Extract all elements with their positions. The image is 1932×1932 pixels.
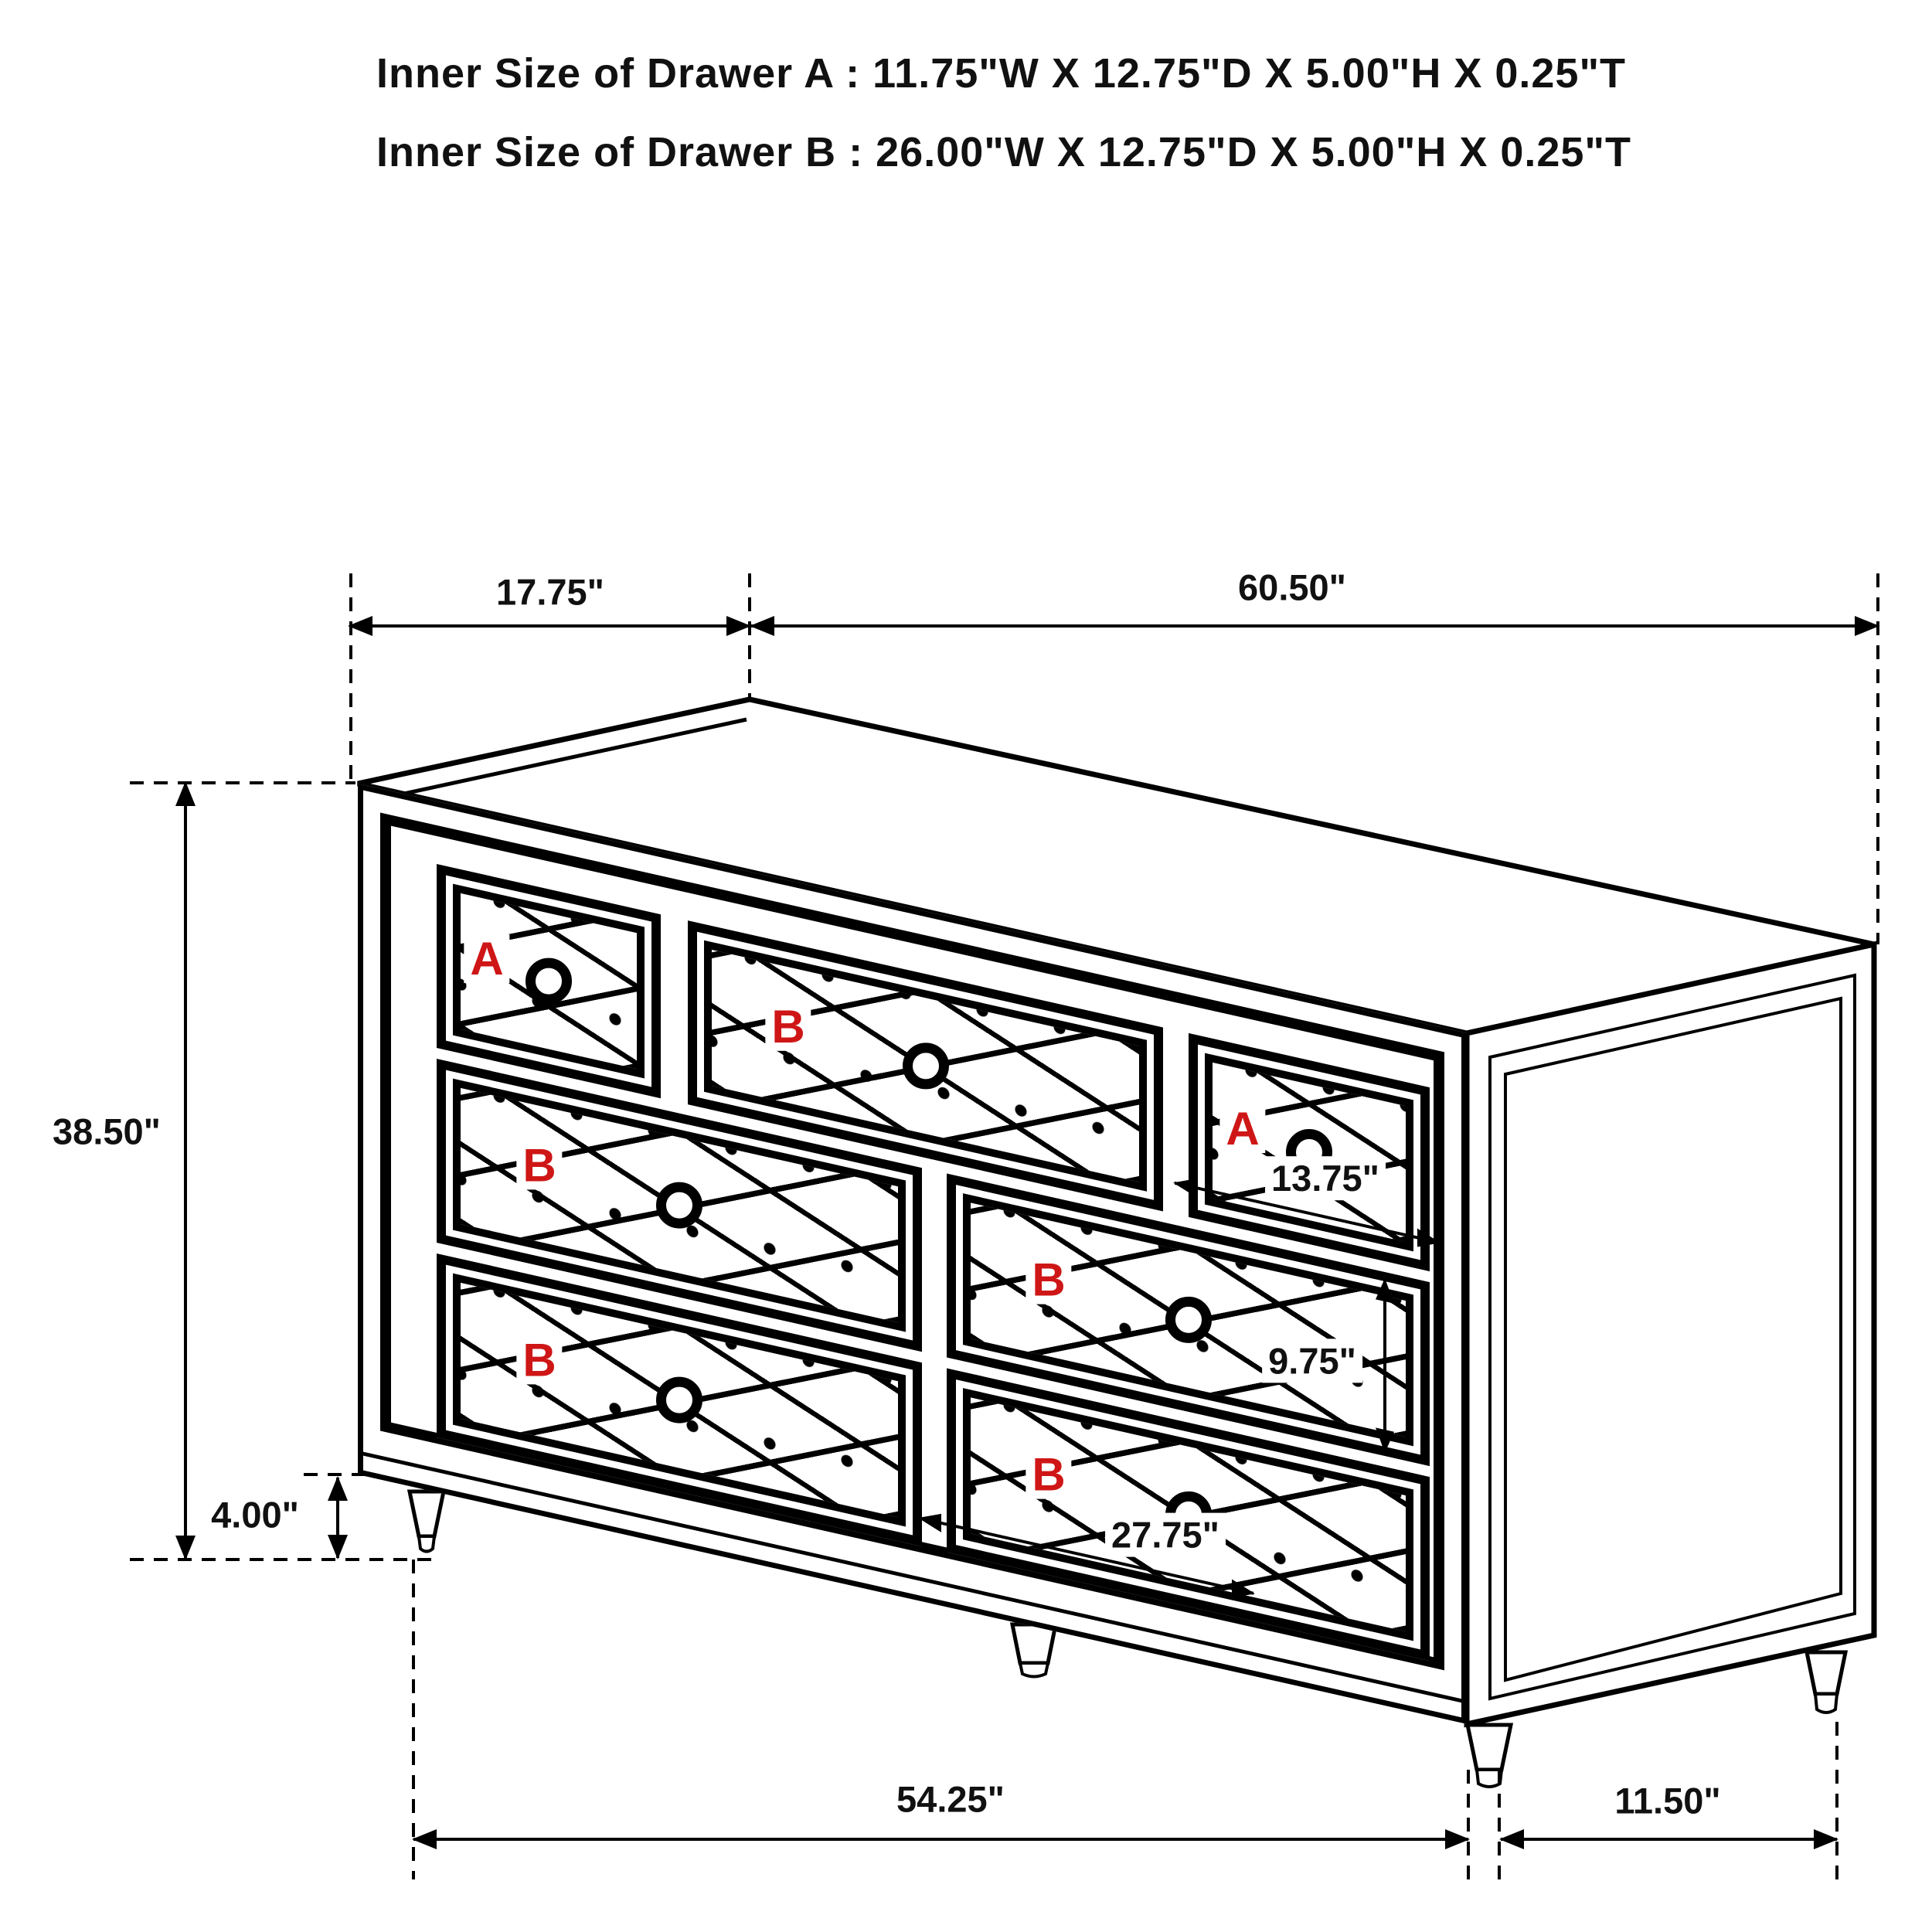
drawer-knob-icon [903,1043,949,1089]
dim-arrow-drawer-b-height [1383,1280,1386,1452]
dim-arrow-overall-height [184,783,187,1559]
rear-right-leg [1807,1652,1845,1713]
dim-arrow-top-width [751,624,1878,628]
dim-label-base-front-width: 54.25" [890,1777,1011,1821]
dim-label-drawer-b-height: 9.75" [1262,1338,1362,1383]
drawer-letter-label: B [1026,1451,1072,1499]
drawer-knob-icon [656,1377,702,1423]
drawer-letter-label: B [1026,1256,1072,1304]
dim-arrow-base-side-depth [1501,1838,1837,1841]
dresser-right-face [1467,944,1874,1724]
extension-line-rear-right-leg [1835,1722,1838,1879]
extension-line-height-top [130,781,355,784]
drawer-letter-label: B [516,1336,562,1385]
drawer-letter-label: B [516,1141,562,1190]
front-middle-leg [1012,1624,1056,1677]
dim-label-leg-height: 4.00" [205,1493,305,1537]
drawer-knob-icon [1165,1297,1212,1343]
dim-label-overall-height: 38.50" [46,1110,167,1154]
dresser-dimension-diagram: Inner Size of Drawer A : 11.75"W X 12.75… [0,0,1932,1932]
front-left-leg [410,1492,444,1552]
drawer-knob-icon [526,958,572,1005]
extension-line-top-apex [748,573,751,701]
drawer-letter-label: B [766,1002,811,1051]
extension-line-front-right-leg-left [1467,1770,1470,1879]
drawer-letter-label: A [1219,1104,1265,1153]
dim-arrow-leg-height [336,1478,339,1558]
dim-arrow-top-depth [349,624,750,628]
drawer-letter-label: A [464,934,510,983]
extension-line-top-left [349,573,352,782]
dim-label-drawer-a-width: 13.75" [1265,1156,1386,1200]
front-right-leg [1468,1725,1511,1787]
dim-label-top-width: 60.50" [1232,566,1352,610]
dim-label-drawer-b-width: 27.75" [1105,1513,1226,1557]
dim-arrow-base-front-width [413,1838,1468,1841]
dim-label-top-depth: 17.75" [490,570,611,614]
drawer-knob-icon [656,1182,702,1229]
extension-line-front-right-leg-right [1498,1770,1501,1879]
dim-label-base-side-depth: 11.50" [1608,1779,1726,1823]
